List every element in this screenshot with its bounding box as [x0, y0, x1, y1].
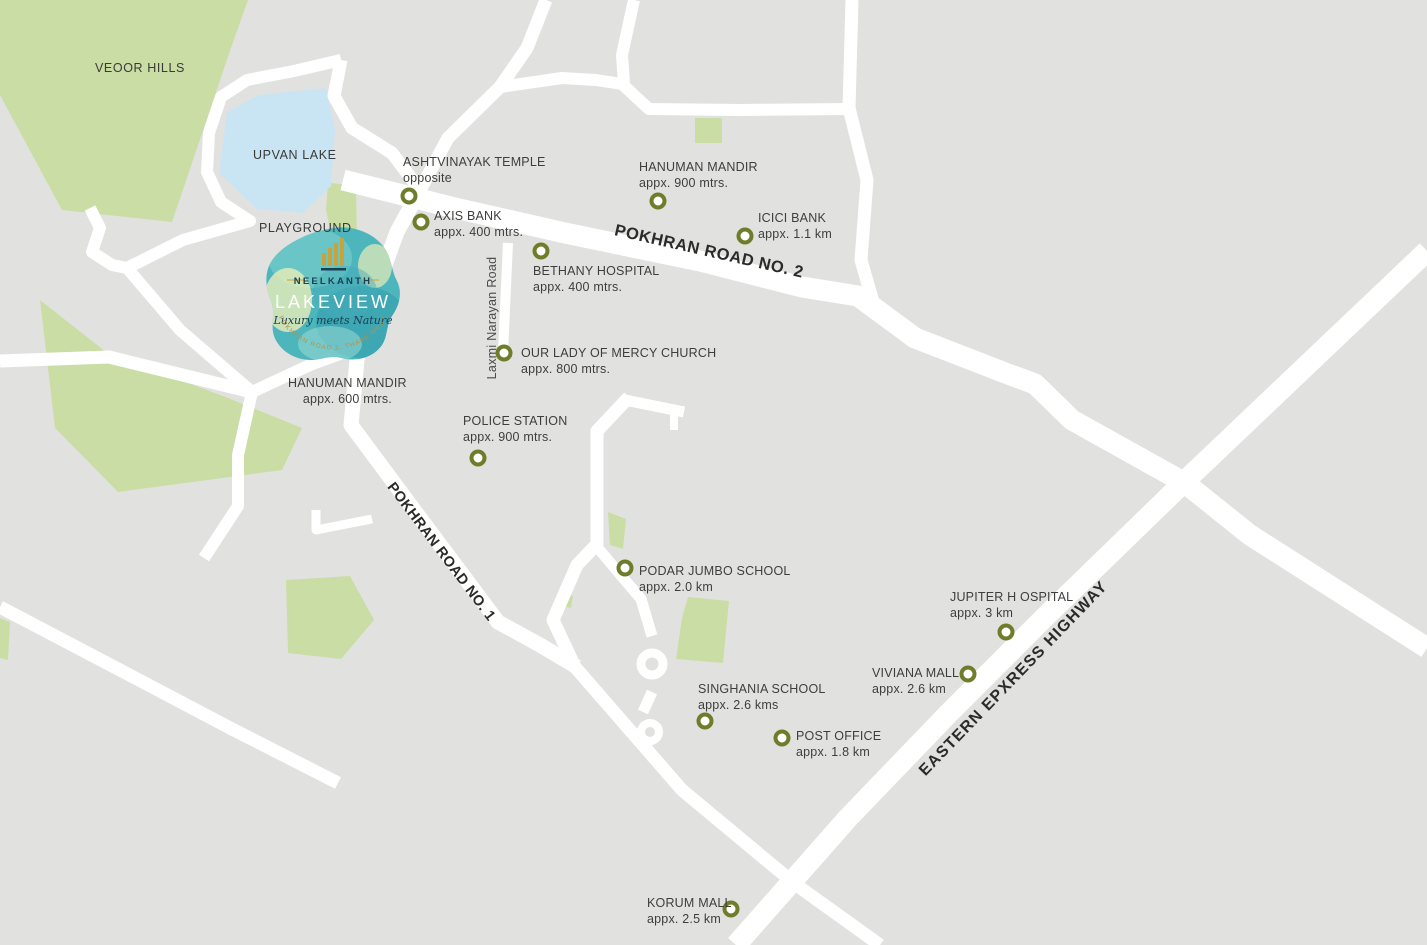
- map-canvas: NEELKANTH LAKEVIEW Luxury meets Nature P…: [0, 0, 1427, 945]
- marker-hanuman-mandir-north[interactable]: [650, 193, 667, 210]
- label-upvan-lake: UPVAN LAKE: [253, 148, 337, 162]
- poi-name: HANUMAN MANDIR: [639, 160, 758, 176]
- marker-police-station[interactable]: [470, 450, 487, 467]
- label-laxmi-narayan-road: Laxmi Narayan Road: [485, 257, 499, 380]
- poi-distance: appx. 900 mtrs.: [639, 176, 758, 192]
- poi-name: AXIS BANK: [434, 209, 523, 225]
- label-post-office: POST OFFICE appx. 1.8 km: [796, 729, 881, 760]
- label-hanuman-mandir-north: HANUMAN MANDIR appx. 900 mtrs.: [639, 160, 758, 191]
- label-viviana-mall: VIVIANA MALL appx. 2.6 km: [872, 666, 959, 697]
- poi-name: POST OFFICE: [796, 729, 881, 745]
- label-icici-bank: ICICI BANK appx. 1.1 km: [758, 211, 832, 242]
- road-laxmi-narayan: [503, 243, 508, 352]
- poi-name: BETHANY HOSPITAL: [533, 264, 659, 280]
- label-axis-bank: AXIS BANK appx. 400 mtrs.: [434, 209, 523, 240]
- marker-podar-jumbo-school[interactable]: [617, 560, 634, 577]
- road-top-right-vertical: [849, 0, 873, 302]
- label-veoor-hills: VEOOR HILLS: [95, 61, 185, 75]
- marker-our-lady-of-mercy-church[interactable]: [496, 345, 513, 362]
- poi-distance: appx. 600 mtrs.: [288, 392, 407, 408]
- project-name: LAKEVIEW: [275, 292, 391, 312]
- label-singhania-school: SINGHANIA SCHOOL appx. 2.6 kms: [698, 682, 826, 713]
- green-area-top-mid: [695, 118, 722, 143]
- poi-name: PODAR JUMBO SCHOOL: [639, 564, 791, 580]
- poi-distance: appx. 800 mtrs.: [521, 362, 716, 378]
- poi-name: POLICE STATION: [463, 414, 567, 430]
- label-ashtvinayak-temple: ASHTVINAYAK TEMPLE opposite: [403, 155, 546, 186]
- label-playground: PLAYGROUND: [259, 221, 352, 235]
- green-area-sliver-1: [608, 512, 626, 549]
- green-area-mid-trapezoid: [676, 597, 729, 663]
- road-bottom-left-diagonal: [0, 607, 338, 783]
- label-our-lady-of-mercy-church: OUR LADY OF MERCY CHURCH appx. 800 mtrs.: [521, 346, 716, 377]
- green-area-left-meadow: [40, 300, 302, 492]
- poi-name: ASHTVINAYAK TEMPLE: [403, 155, 546, 171]
- road-roundabout-link-lower: [643, 692, 652, 712]
- green-area-south-pentagon: [286, 576, 374, 659]
- label-police-station: POLICE STATION appx. 900 mtrs.: [463, 414, 567, 445]
- logo-tagline: Luxury meets Nature: [272, 314, 393, 327]
- marker-axis-bank[interactable]: [413, 214, 430, 231]
- label-podar-jumbo-school: PODAR JUMBO SCHOOL appx. 2.0 km: [639, 564, 791, 595]
- marker-post-office[interactable]: [774, 730, 791, 747]
- poi-name: ICICI BANK: [758, 211, 832, 227]
- poi-name: HANUMAN MANDIR: [288, 376, 407, 392]
- label-hanuman-mandir-west: HANUMAN MANDIR appx. 600 mtrs.: [288, 376, 407, 407]
- green-area-edge-sliver: [0, 618, 10, 660]
- poi-distance: opposite: [403, 171, 546, 187]
- poi-distance: appx. 400 mtrs.: [533, 280, 659, 296]
- road-top-mid-vertical: [622, 0, 634, 84]
- road-side-stub: [316, 510, 372, 530]
- poi-distance: appx. 900 mtrs.: [463, 430, 567, 446]
- road-top-horizontal: [500, 78, 849, 110]
- poi-name: JUPITER H OSPITAL: [950, 590, 1073, 606]
- label-korum-mall: KORUM MALL appx. 2.5 km: [647, 896, 732, 927]
- brand-name: NEELKANTH: [294, 276, 372, 287]
- poi-distance: appx. 1.1 km: [758, 227, 832, 243]
- location-map: NEELKANTH LAKEVIEW Luxury meets Nature P…: [0, 0, 1427, 945]
- marker-icici-bank[interactable]: [737, 228, 754, 245]
- marker-bethany-hospital[interactable]: [533, 243, 550, 260]
- label-bethany-hospital: BETHANY HOSPITAL appx. 400 mtrs.: [533, 264, 659, 295]
- poi-distance: appx. 2.5 km: [647, 912, 732, 928]
- poi-distance: appx. 1.8 km: [796, 745, 881, 761]
- poi-distance: appx. 3 km: [950, 606, 1073, 622]
- road-center-south: [553, 397, 880, 945]
- marker-singhania-school[interactable]: [697, 713, 714, 730]
- poi-distance: appx. 2.6 kms: [698, 698, 826, 714]
- marker-jupiter-hospital[interactable]: [998, 624, 1015, 641]
- label-jupiter-hospital: JUPITER H OSPITAL appx. 3 km: [950, 590, 1073, 621]
- road-top-left-zigzag: [90, 208, 127, 268]
- roundabout-1-island: [647, 659, 657, 669]
- poi-name: VIVIANA MALL: [872, 666, 959, 682]
- poi-name: KORUM MALL: [647, 896, 732, 912]
- road-hook-branch: [625, 400, 684, 412]
- poi-name: SINGHANIA SCHOOL: [698, 682, 826, 698]
- poi-name: OUR LADY OF MERCY CHURCH: [521, 346, 716, 362]
- marker-ashtvinayak-temple[interactable]: [401, 188, 418, 205]
- roundabout-2-island: [646, 728, 654, 736]
- poi-distance: appx. 2.6 km: [872, 682, 959, 698]
- marker-viviana-mall[interactable]: [960, 666, 977, 683]
- poi-distance: appx. 2.0 km: [639, 580, 791, 596]
- poi-distance: appx. 400 mtrs.: [434, 225, 523, 241]
